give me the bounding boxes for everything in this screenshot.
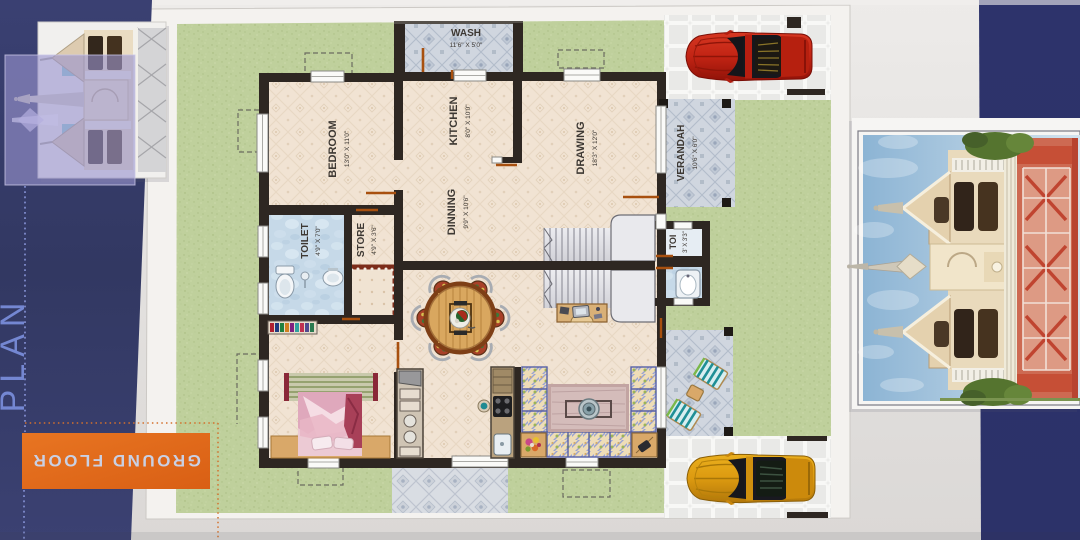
svg-text:13'0" X 11'0": 13'0" X 11'0" [344,130,351,167]
svg-text:4'9" X 3'6": 4'9" X 3'6" [371,225,378,255]
svg-text:9'9" X 10'6": 9'9" X 10'6" [463,195,470,229]
svg-text:TOI: TOI [668,235,678,250]
svg-text:11'6" X 5'0": 11'6" X 5'0" [450,42,483,49]
svg-text:DINNING: DINNING [446,189,458,235]
svg-text:GROUND FLOOR: GROUND FLOOR [31,451,201,470]
svg-text:STORE: STORE [356,223,367,258]
svg-text:4'9" X 7'0": 4'9" X 7'0" [315,226,322,256]
svg-text:3' X 3'3": 3' X 3'3" [683,231,689,253]
svg-text:PLAN: PLAN [0,296,32,413]
svg-text:KITCHEN: KITCHEN [448,97,460,146]
svg-text:TOILET: TOILET [300,223,311,258]
svg-text:8'0" X 10'0": 8'0" X 10'0" [465,104,472,138]
svg-text:WASH: WASH [451,28,481,39]
svg-text:DRAWING: DRAWING [575,121,587,174]
svg-text:18'3" X 12'0": 18'3" X 12'0" [592,129,599,166]
svg-text:VERANDAH: VERANDAH [676,125,687,182]
svg-text:BEDROOM: BEDROOM [327,120,339,177]
svg-text:10'6" X 6'0": 10'6" X 6'0" [692,136,699,170]
